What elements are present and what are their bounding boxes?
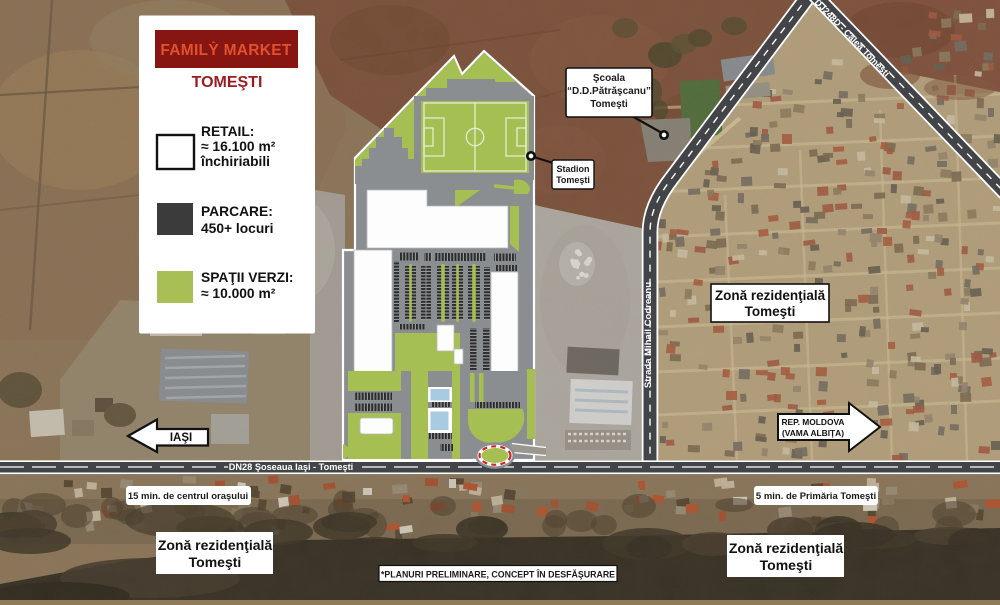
svg-text:TOMEŞTI: TOMEŞTI bbox=[192, 74, 263, 91]
svg-text:Şcoala: Şcoala bbox=[593, 73, 626, 84]
svg-text:450+ locuri: 450+ locuri bbox=[201, 221, 273, 236]
svg-text:≈ 16.100 m²: ≈ 16.100 m² bbox=[201, 139, 276, 154]
svg-text:Strada Mihail Codreanu: Strada Mihail Codreanu bbox=[643, 282, 654, 388]
svg-text:Tomeşti: Tomeşti bbox=[760, 557, 813, 573]
svg-text:IAŞI: IAŞI bbox=[170, 432, 192, 444]
svg-text:(VAMA ALBIŢA): (VAMA ALBIŢA) bbox=[782, 428, 844, 438]
svg-text:≈ 10.000 m²: ≈ 10.000 m² bbox=[201, 286, 276, 301]
svg-text:închiriabili: închiriabili bbox=[200, 154, 270, 169]
svg-text:REP. MOLDOVA: REP. MOLDOVA bbox=[782, 417, 845, 427]
svg-text:15 min. de centrul oraşului: 15 min. de centrul oraşului bbox=[128, 491, 248, 502]
svg-text:SPAŢII VERZI:: SPAŢII VERZI: bbox=[201, 270, 294, 285]
svg-text:“D.D.Pătrăşcanu”: “D.D.Pătrăşcanu” bbox=[567, 86, 651, 97]
svg-text:Zonă rezidenţială: Zonă rezidenţială bbox=[158, 537, 273, 553]
svg-text:Tomeşti: Tomeşti bbox=[590, 99, 628, 110]
svg-text:DN28 Şoseaua Iaşi - Tomeşti: DN28 Şoseaua Iaşi - Tomeşti bbox=[229, 462, 353, 472]
svg-text:Zonă rezidenţială: Zonă rezidenţială bbox=[715, 288, 826, 303]
svg-text:FAMILẎ MARKET: FAMILẎ MARKET bbox=[160, 42, 292, 59]
svg-text:Tomeşti: Tomeşti bbox=[189, 554, 242, 570]
svg-text:PARCARE:: PARCARE: bbox=[201, 204, 273, 219]
svg-text:Tomeşti: Tomeşti bbox=[745, 304, 796, 319]
svg-text:*PLANURI PRELIMINARE, CONCEPT: *PLANURI PRELIMINARE, CONCEPT ÎN DESFĂŞU… bbox=[381, 569, 615, 580]
svg-text:5 min. de Primăria Tomeşti: 5 min. de Primăria Tomeşti bbox=[756, 491, 876, 502]
svg-text:Stadion: Stadion bbox=[557, 164, 590, 174]
svg-text:Tomeşti: Tomeşti bbox=[556, 175, 590, 185]
svg-text:RETAIL:: RETAIL: bbox=[201, 124, 254, 139]
svg-text:Zonă rezidenţială: Zonă rezidenţială bbox=[729, 540, 844, 556]
